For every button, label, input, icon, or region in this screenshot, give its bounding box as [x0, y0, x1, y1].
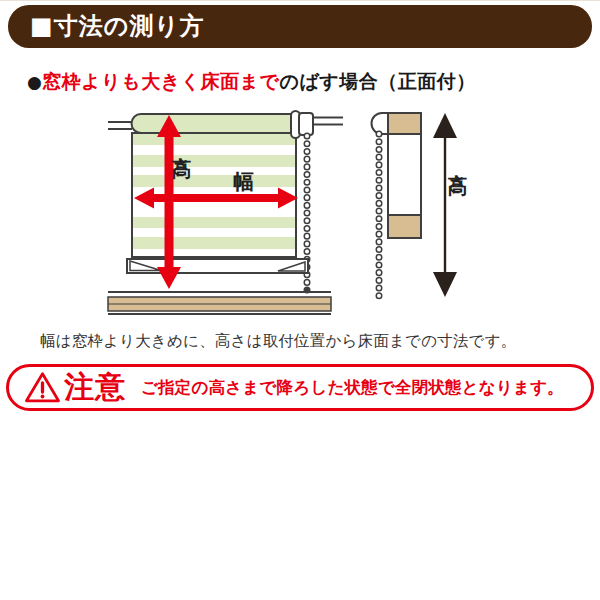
side-height-label: 高さ — [448, 158, 468, 187]
roller-tube — [132, 114, 296, 133]
rail-left — [108, 122, 132, 129]
front-view-illustration — [105, 108, 345, 320]
bullet-icon: ● — [27, 72, 42, 92]
caption: 幅は窓枠より大きめに、高さは取付位置から床面までの寸法です。 — [40, 331, 516, 352]
section-heading: ●窓枠よりも大きく床面までのばす場合（正面付） — [27, 69, 476, 95]
front-width-label: 幅 — [233, 168, 254, 196]
warning-title: 注意 — [64, 367, 126, 408]
page: ■寸法の測り方 ●窓枠よりも大きく床面までのばす場合（正面付） — [0, 0, 600, 600]
side-height-arrow — [433, 113, 457, 297]
window-frame-section — [388, 113, 421, 238]
section-title-highlight: 窓枠よりも大きく床面まで — [42, 70, 279, 92]
page-title: ■寸法の測り方 — [30, 12, 205, 40]
warning-message: ご指定の高さまで降ろした状態で全閉状態となります。 — [141, 377, 564, 399]
rail-right — [313, 118, 343, 125]
warning-box: 注意 ご指定の高さまで降ろした状態で全閉状態となります。 — [6, 364, 594, 411]
side-view-illustration — [360, 108, 475, 308]
top-divider — [0, 0, 600, 1]
section-title-rest: のばす場合（正面付） — [279, 70, 475, 92]
floor — [108, 291, 331, 315]
front-height-label: 高さ — [172, 141, 192, 170]
warning-triangle-icon — [24, 371, 61, 404]
header-bar: ■寸法の測り方 — [8, 5, 592, 48]
bottom-bar — [127, 259, 308, 273]
